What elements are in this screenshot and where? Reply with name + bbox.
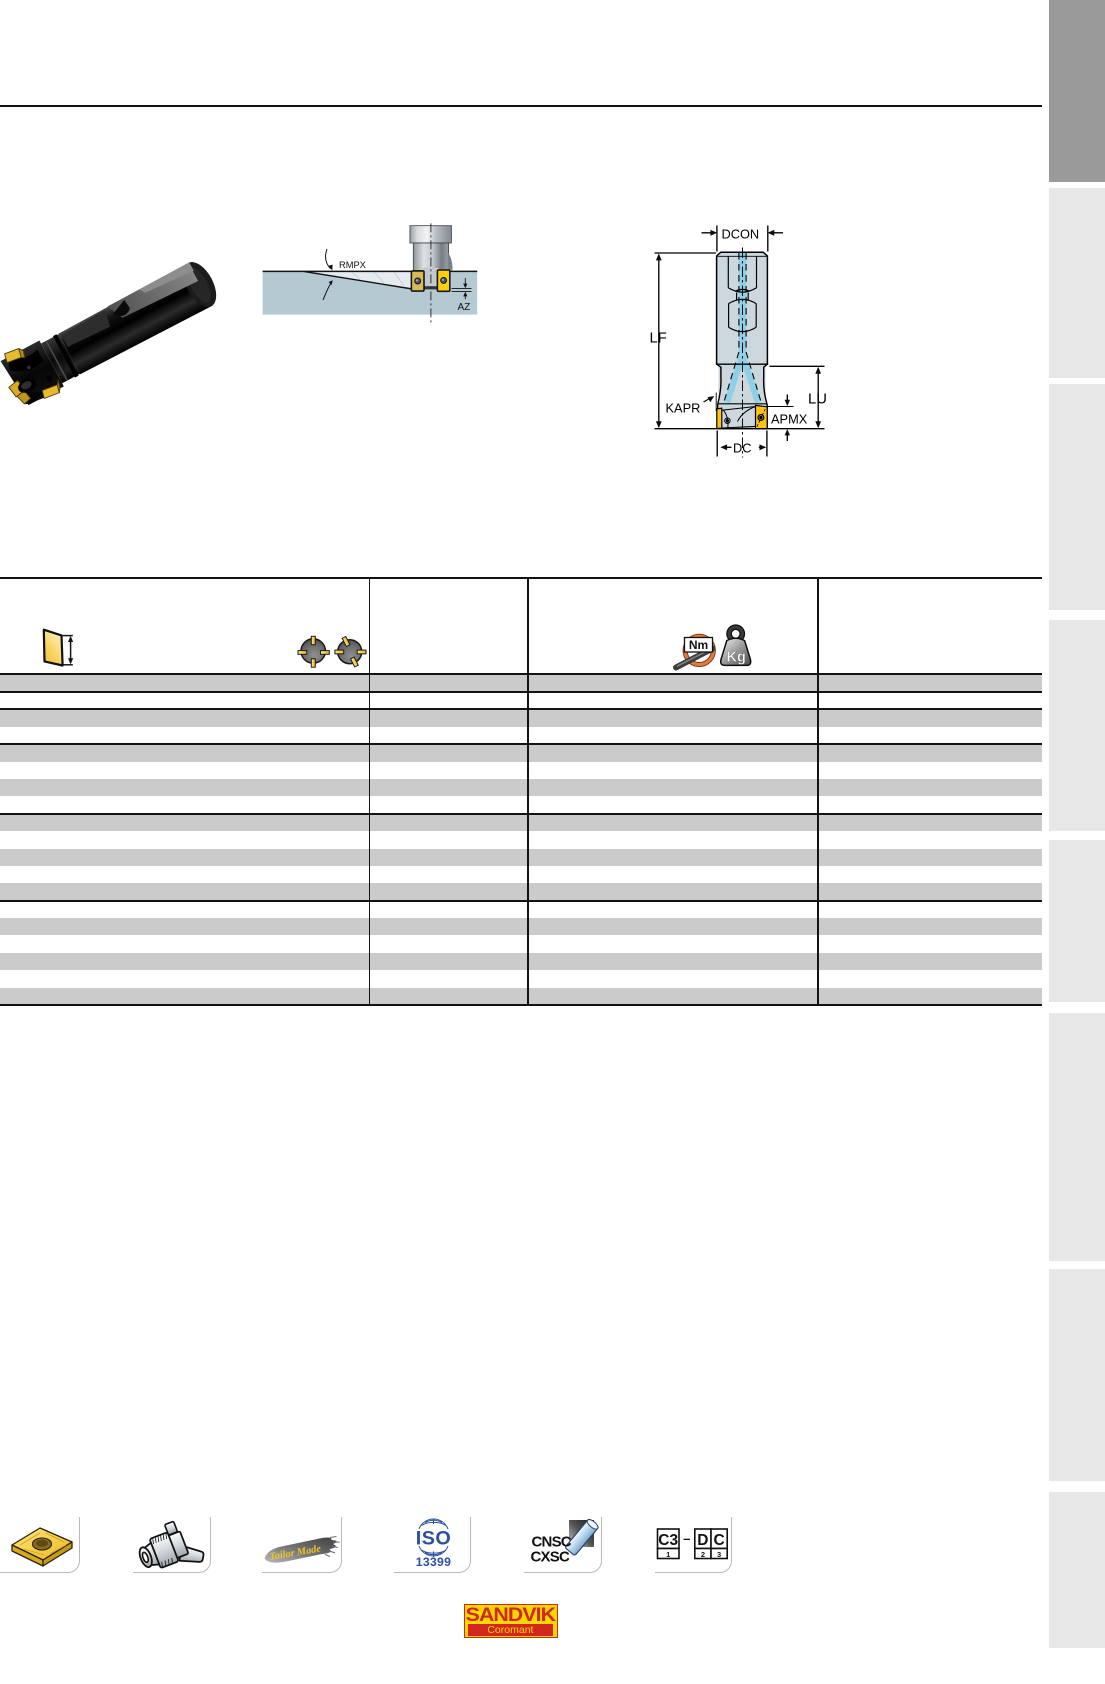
svg-text:DCON: DCON (722, 227, 760, 242)
svg-text:2: 2 (701, 1550, 705, 1559)
svg-text:DC: DC (733, 441, 751, 456)
svg-text:D: D (697, 1532, 708, 1549)
svg-text:–: – (683, 1531, 690, 1546)
svg-text:LF: LF (650, 331, 667, 347)
svg-text:C3: C3 (658, 1532, 678, 1549)
svg-text:13399: 13399 (416, 1555, 451, 1569)
svg-text:RMPX: RMPX (339, 260, 366, 270)
svg-text:APMX: APMX (771, 412, 808, 427)
svg-text:ISO: ISO (416, 1528, 452, 1550)
svg-text:LU: LU (808, 392, 827, 408)
svg-text:Nm: Nm (689, 638, 708, 652)
svg-text:Kg: Kg (727, 650, 746, 666)
svg-text:AZ: AZ (458, 302, 471, 313)
svg-text:CXSC: CXSC (531, 1549, 570, 1566)
svg-text:KAPR: KAPR (666, 401, 701, 416)
svg-text:3: 3 (717, 1550, 721, 1559)
svg-text:C: C (713, 1532, 724, 1549)
svg-text:1: 1 (666, 1550, 670, 1559)
